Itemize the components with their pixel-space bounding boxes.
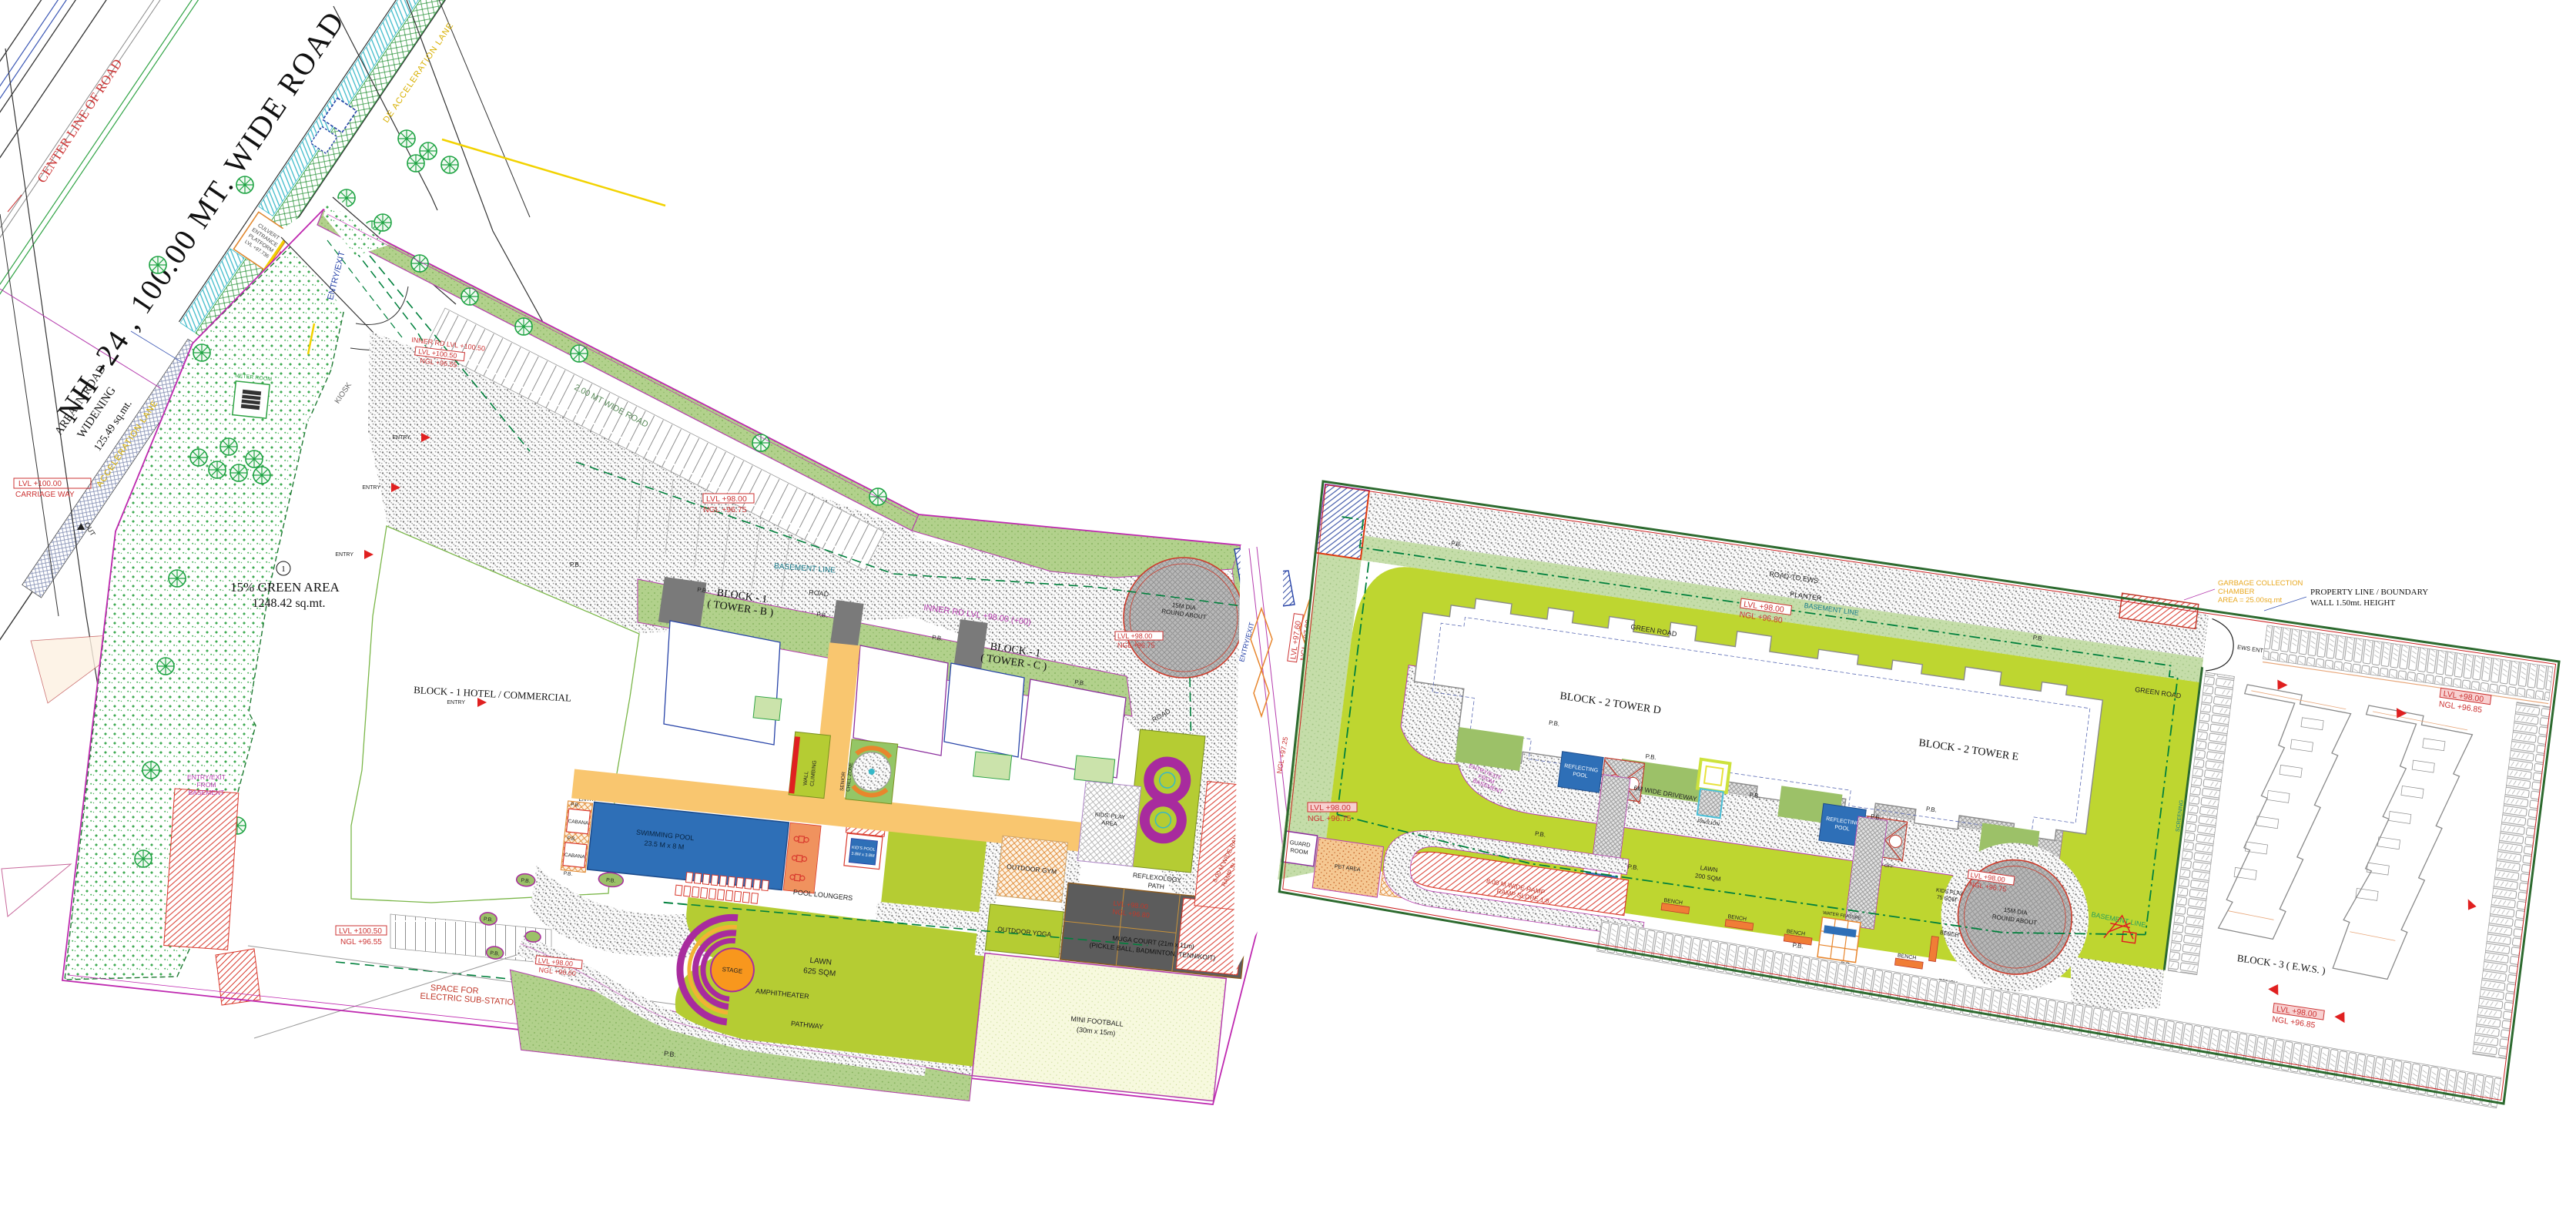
- svg-text:ENTRY: ENTRY: [447, 700, 465, 705]
- svg-text:P.B.: P.B.: [606, 878, 616, 884]
- svg-text:ENTRY: ENTRY: [335, 552, 353, 558]
- svg-text:NGL +96.75: NGL +96.75: [1308, 814, 1352, 823]
- svg-text:15% GREEN AREA: 15% GREEN AREA: [230, 580, 340, 595]
- svg-text:CARRIAGE WAY: CARRIAGE WAY: [15, 491, 75, 499]
- svg-text:P.B.: P.B.: [567, 836, 576, 842]
- svg-text:P.B.: P.B.: [490, 950, 500, 957]
- svg-text:CHAMBER: CHAMBER: [2218, 588, 2255, 596]
- svg-text:NGL +96.75: NGL +96.75: [703, 505, 747, 514]
- svg-text:ENTRY: ENTRY: [392, 435, 410, 441]
- svg-text:P.B.: P.B.: [563, 871, 572, 877]
- svg-text:NGL +96.75: NGL +96.75: [1117, 642, 1154, 649]
- svg-text:1: 1: [281, 565, 286, 574]
- svg-text:LVL +98.00: LVL +98.00: [1310, 803, 1351, 813]
- svg-text:FROM: FROM: [196, 781, 216, 789]
- svg-text:P.B.: P.B.: [570, 561, 581, 568]
- svg-text:ENTRY/EXIT: ENTRY/EXIT: [187, 773, 226, 781]
- svg-text:LVL +98.00: LVL +98.00: [706, 494, 747, 504]
- svg-text:GARBAGE COLLECTION: GARBAGE COLLECTION: [2218, 579, 2303, 588]
- svg-text:BASEMENT: BASEMENT: [189, 789, 225, 796]
- svg-text:P.B.: P.B.: [664, 1050, 677, 1059]
- svg-text:P.B.: P.B.: [571, 802, 580, 808]
- svg-text:LVL +100.00: LVL +100.00: [18, 480, 62, 488]
- svg-text:PROPERTY LINE / BOUNDARY: PROPERTY LINE / BOUNDARY: [2310, 588, 2428, 597]
- svg-text:P.B.: P.B.: [483, 916, 493, 923]
- svg-text:1248.42 sq.mt.: 1248.42 sq.mt.: [252, 597, 325, 610]
- svg-text:ENTRY: ENTRY: [362, 485, 380, 491]
- svg-text:LVL +98.00: LVL +98.00: [1117, 632, 1152, 640]
- svg-text:P.B.: P.B.: [521, 878, 531, 884]
- svg-text:NGL +96.55: NGL +96.55: [340, 938, 382, 947]
- svg-text:LVL +100.50: LVL +100.50: [339, 927, 382, 936]
- svg-text:AREA = 25.00sq.mt: AREA = 25.00sq.mt: [2218, 596, 2283, 605]
- svg-text:WALL 1.50mt. HEIGHT: WALL 1.50mt. HEIGHT: [2310, 598, 2395, 608]
